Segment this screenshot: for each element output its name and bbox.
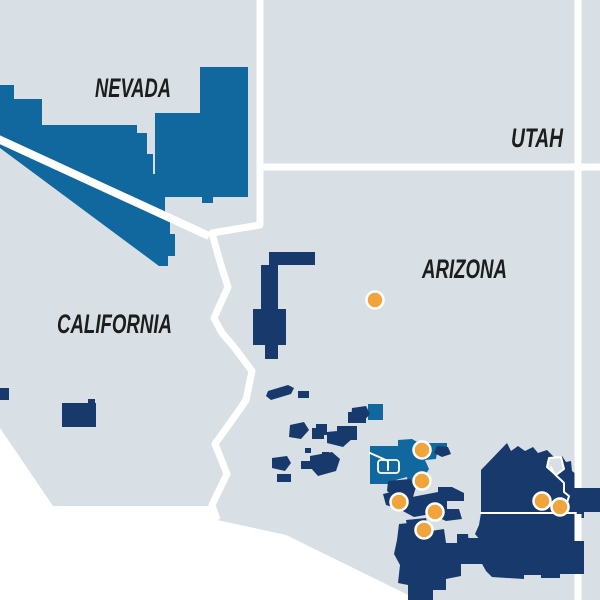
small-square-parcel xyxy=(368,404,383,420)
state-label-arizona: ARIZONA xyxy=(421,254,507,284)
map-marker-5[interactable] xyxy=(427,504,444,521)
map-marker-3[interactable] xyxy=(414,473,431,490)
map-marker-4[interactable] xyxy=(391,494,408,511)
map-marker-1[interactable] xyxy=(367,292,384,309)
state-label-utah: UTAH xyxy=(511,123,563,153)
map-marker-7[interactable] xyxy=(534,493,551,510)
state-label-nevada: NEVADA xyxy=(95,73,171,103)
left-edge-parcel xyxy=(0,388,9,400)
southwest-states-map: NEVADA UTAH CALIFORNIA ARIZONA xyxy=(0,0,600,600)
map-marker-8[interactable] xyxy=(552,499,569,516)
california-square-parcel xyxy=(62,399,96,427)
map-marker-2[interactable] xyxy=(414,442,431,459)
map-stage: NEVADA UTAH CALIFORNIA ARIZONA xyxy=(0,0,600,600)
state-label-california: CALIFORNIA xyxy=(57,309,172,339)
map-marker-6[interactable] xyxy=(416,522,433,539)
